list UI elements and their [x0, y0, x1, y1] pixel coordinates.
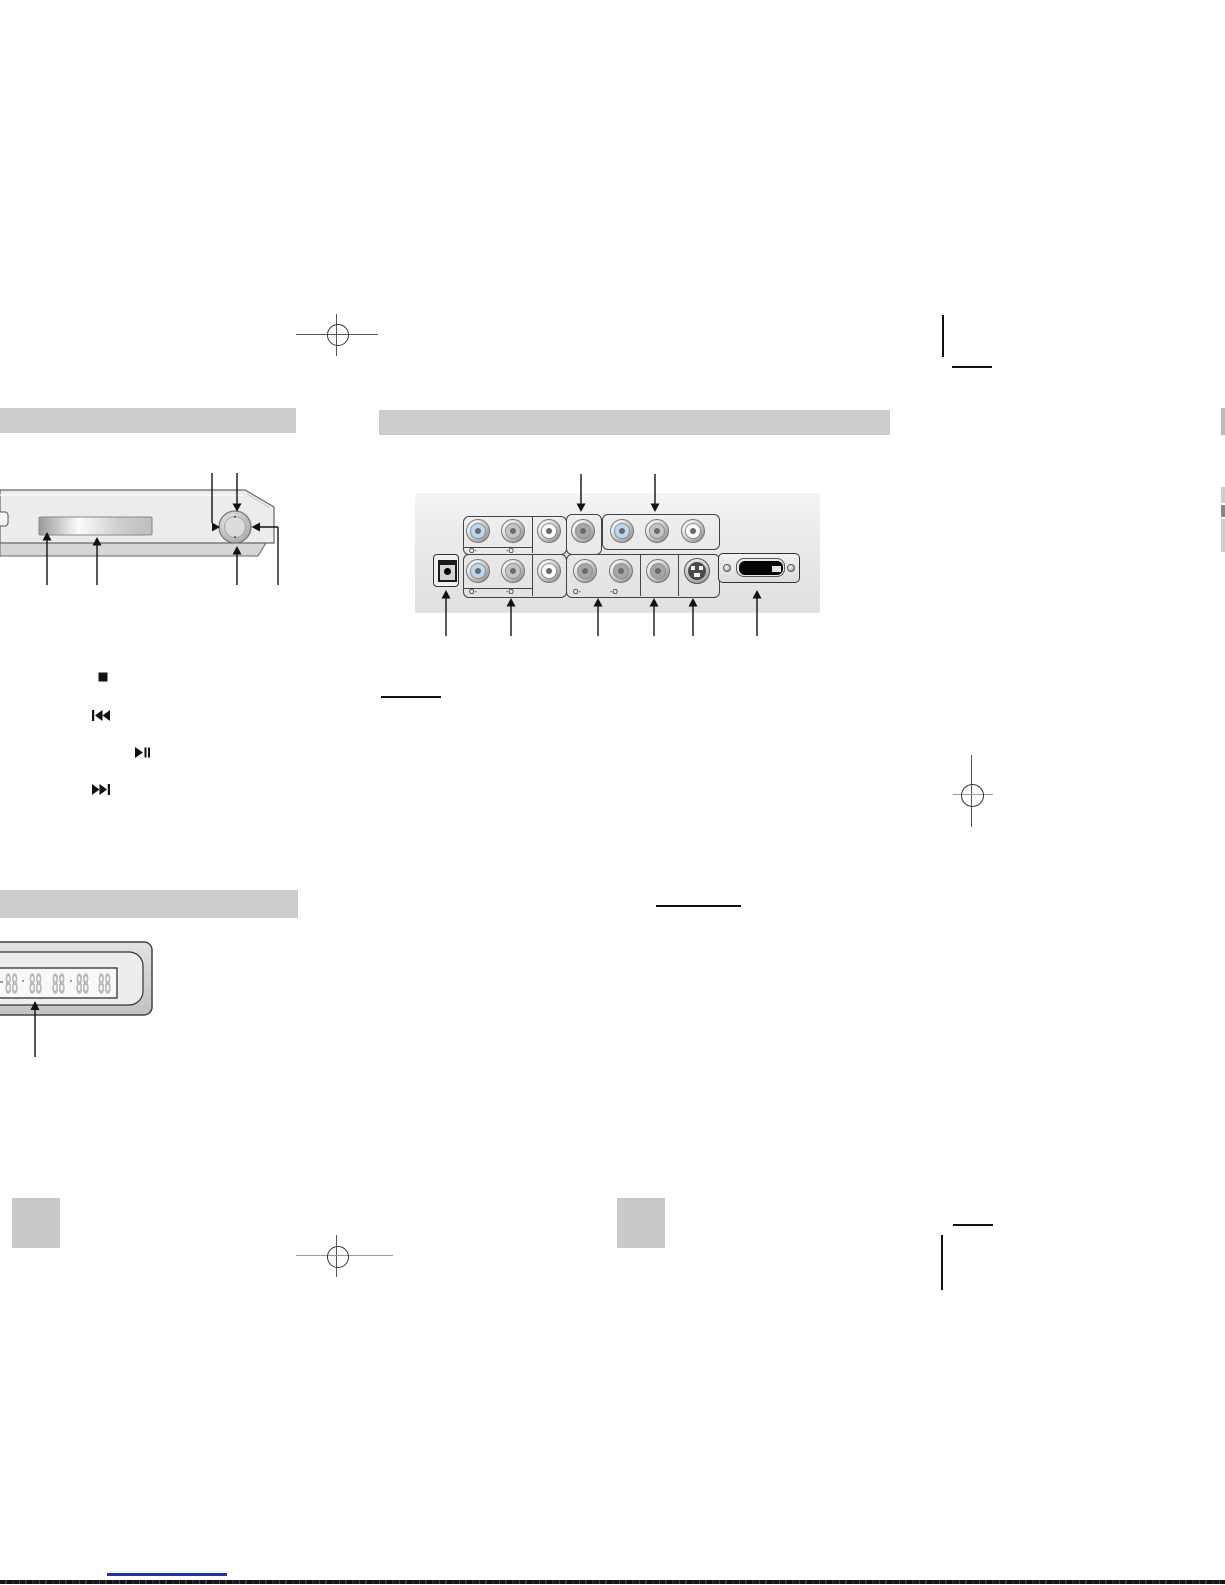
- rca-jack: [501, 559, 525, 583]
- underline-rule: [656, 905, 741, 907]
- page-edge-artifact: [1221, 505, 1225, 517]
- play-pause-icon: [135, 747, 150, 758]
- page-edge-artifact: [1221, 519, 1225, 552]
- page-number-box: [12, 1198, 60, 1248]
- front-display-illustration: 88 88 88 88 88: [0, 935, 165, 1060]
- section-header-rear-panel: [379, 410, 890, 435]
- rca-jack: [501, 519, 525, 543]
- channel-mark: -O: [506, 589, 514, 596]
- skip-forward-icon: [92, 784, 110, 795]
- optical-digital-connector: [433, 554, 459, 587]
- rca-jack: [537, 519, 561, 543]
- rca-jack: [466, 559, 490, 583]
- rca-jack: [466, 519, 490, 543]
- manual-page: O- -O O- -O O- -O: [0, 0, 1225, 1585]
- rear-panel-illustration: O- -O O- -O O- -O: [410, 468, 830, 640]
- rca-jack: [609, 559, 633, 583]
- rca-jack: [571, 519, 595, 543]
- underline-rule: [381, 696, 441, 698]
- rca-jack: [645, 519, 669, 543]
- svg-text:88: 88: [76, 970, 89, 1000]
- channel-mark: O-: [469, 548, 477, 555]
- scan-edge-noise: [0, 1580, 1225, 1584]
- channel-mark: -O: [610, 589, 618, 596]
- svg-text:88: 88: [98, 970, 111, 1000]
- section-header-front-display: [0, 890, 298, 918]
- front-display-window: [39, 517, 152, 535]
- rca-jack: [610, 519, 634, 543]
- av-multi-connector: [718, 553, 800, 583]
- section-header-front-panel: [0, 408, 296, 433]
- rca-jack: [573, 559, 597, 583]
- channel-mark: O-: [469, 589, 477, 596]
- svg-text:88: 88: [5, 970, 18, 1000]
- front-panel-illustration: [0, 468, 290, 588]
- partial-button: [0, 512, 8, 526]
- svg-text:88: 88: [52, 970, 65, 1000]
- skip-back-icon: [92, 710, 110, 721]
- channel-mark: -O: [506, 548, 514, 555]
- callout-arrow: [31, 1001, 40, 1057]
- rca-jack: [681, 519, 705, 543]
- svg-text:88: 88: [29, 970, 42, 1000]
- channel-mark: O-: [573, 589, 581, 596]
- footer-blue-rule: [107, 1573, 227, 1576]
- page-edge-artifact: [1221, 408, 1225, 435]
- stop-icon: [98, 672, 108, 682]
- page-edge-artifact: [1221, 487, 1225, 503]
- rca-jack: [646, 559, 670, 583]
- s-video-connector: [684, 558, 710, 584]
- rca-jack: [537, 559, 561, 583]
- page-number-box: [617, 1198, 665, 1248]
